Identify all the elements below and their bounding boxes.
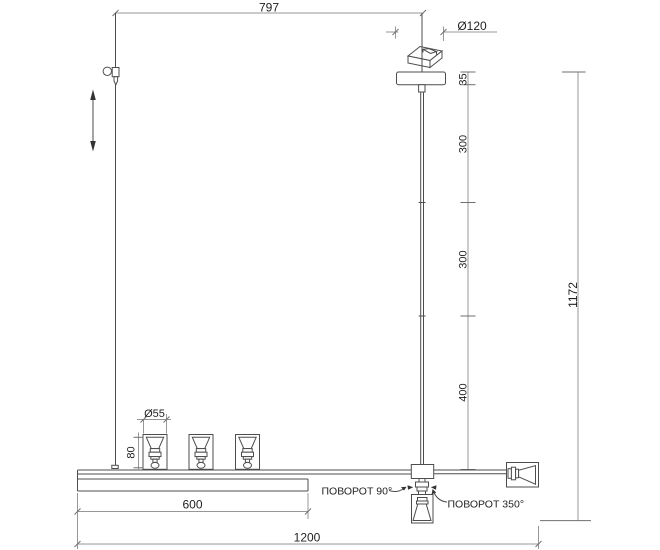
dim-label-1172: 1172 — [566, 282, 580, 308]
up-lamp-3 — [236, 435, 260, 470]
horizontal-bar — [78, 470, 507, 491]
canopy-plate — [397, 72, 446, 85]
height-adjust-arrow — [90, 90, 96, 152]
side-lamp-right — [507, 463, 539, 488]
dim-label-600: 600 — [182, 498, 202, 512]
ceiling-mount-bracket — [408, 47, 442, 68]
dimension-shade-height: 80 — [126, 433, 144, 471]
junction-box — [411, 465, 433, 479]
annotation-rotation-90: ПОВОРОТ 90° — [322, 486, 407, 498]
dim-label-300-upper: 300 — [458, 135, 470, 153]
dim-label-1200: 1200 — [294, 531, 321, 545]
dim-label-797: 797 — [259, 1, 279, 15]
down-lamp — [412, 479, 434, 524]
drawing-svg: 797 Ø120 — [0, 0, 660, 550]
dim-label-d120: Ø120 — [457, 19, 487, 33]
dimension-canopy-diameter: Ø120 — [386, 19, 497, 41]
cable-ceiling-clamp — [103, 67, 119, 85]
dimension-shade-diameter: Ø55 — [137, 408, 171, 434]
dim-label-400: 400 — [458, 383, 470, 401]
dimension-total-height: 1172 — [540, 72, 591, 521]
up-lamp-1 — [143, 435, 167, 470]
dimension-track-length: 600 — [75, 493, 312, 549]
dimension-total-length: 1200 — [75, 526, 542, 549]
technical-drawing-pendant-light: 797 Ø120 — [0, 0, 660, 550]
dim-label-300-middle: 300 — [458, 250, 470, 268]
annotation-rotation-350: ПОВОРОТ 350° — [432, 489, 524, 511]
dimension-top-offset-797: 797 — [113, 1, 427, 17]
dim-label-35: 35 — [458, 73, 470, 85]
up-lamp-2 — [189, 435, 213, 470]
rotation-90-label: ПОВОРОТ 90° — [322, 486, 393, 498]
dimension-chain-rod: 35 300 300 400 — [458, 72, 476, 470]
dim-label-80: 80 — [126, 446, 138, 458]
hanging-rod — [419, 85, 426, 465]
rotation-350-label: ПОВОРОТ 350° — [448, 499, 525, 511]
dim-label-d55: Ø55 — [144, 408, 165, 420]
